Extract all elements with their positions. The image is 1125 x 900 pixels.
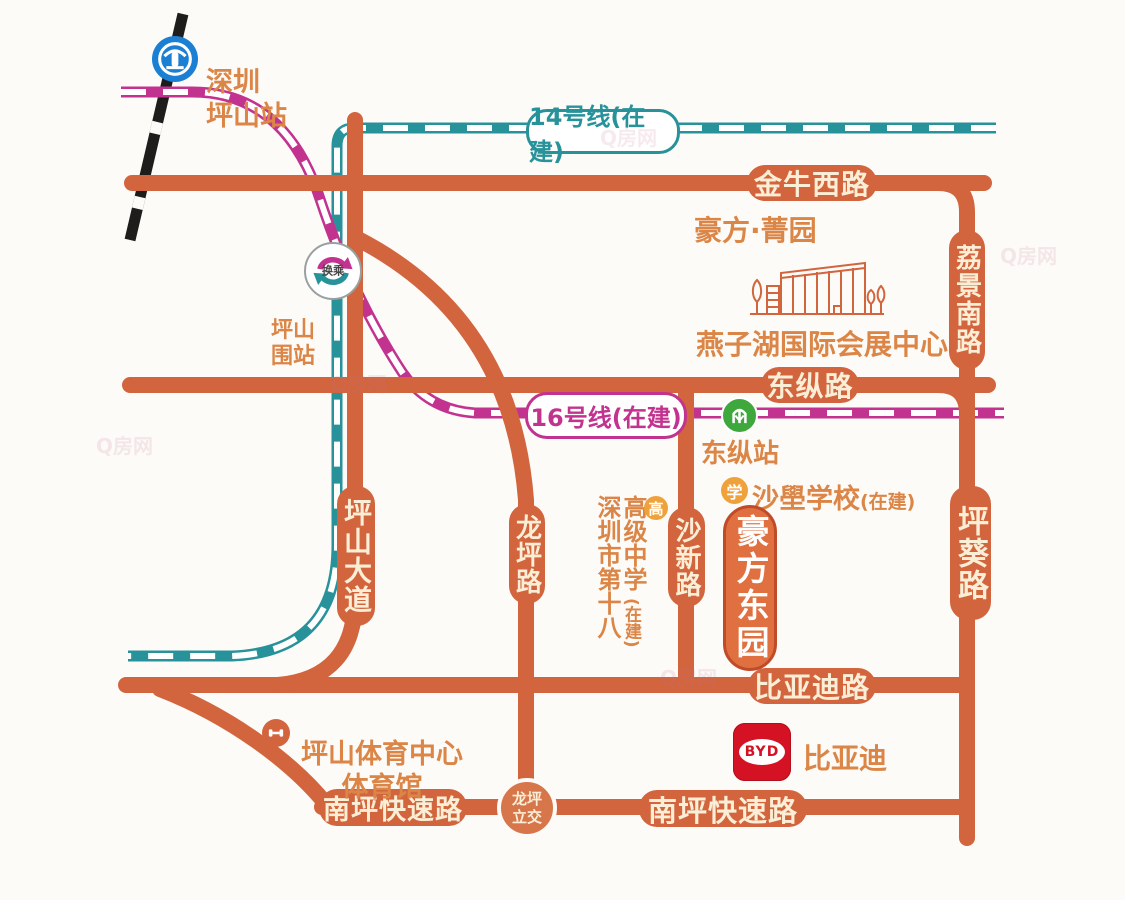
road-label-text: 沙新路 [668,517,705,598]
china-railway-emblem [152,36,198,82]
project-name-text: 豪方东园 [726,514,774,662]
line16-label: 16号线(在建) [530,398,681,433]
transfer-station-icon: 换乘 [304,242,362,300]
road-label-nanping-east: 南坪快速路 [639,790,807,827]
road-label-pingshan-avenue: 坪山大道 [337,486,375,626]
poi-text: 高级中学 [619,495,647,591]
badge-text: 高 [648,498,663,519]
line16-label-pill: 16号线(在建) [525,392,687,439]
byd-logo: BYD [733,723,791,781]
poi-text: 燕子湖国际会展中心 [696,328,948,361]
poi-byd-company: 比亚迪 [803,737,887,777]
china-railway-station-icon [152,36,198,82]
road-label-shaxin: 沙新路 [668,507,705,607]
road-label-text: 荔景南路 [949,244,986,356]
poi-text: 比亚迪 [803,742,887,775]
highschool-badge-icon: 高 [644,496,668,520]
poi-sports-center: 坪山体育中心 体育馆 [296,706,468,805]
road-label-jinniu-west: 金牛西路 [747,165,877,201]
station-label-text: 深圳 坪山站 [206,67,287,132]
shenzhen-metro-station-icon [721,397,758,434]
line14-label: 14号线(在建) [529,97,677,167]
poi-text: 豪方·菁园 [694,214,817,247]
project-haofang-dongyuan: 豪方东园 [723,505,777,671]
gym-dumbbell-icon [262,719,290,747]
map-canvas: 14号线(在建) 16号线(在建) 金牛西路 东纵路 荔景南路 坪山大道 龙坪路… [0,0,1125,900]
poi-shabo-school: 沙壆学校(在建) [752,477,915,516]
poi-yanzihu-convention-center: 燕子湖国际会展中心 [696,323,948,363]
road-label-text: 东纵路 [766,365,853,405]
poi-status-text: (在建) [621,598,641,648]
station-dongzong-label: 东纵站 [701,433,779,470]
station-label-text: 东纵站 [701,439,779,469]
road-label-text: 坪山大道 [336,498,376,614]
badge-text: 学 [726,479,742,503]
road-longping [356,238,526,784]
station-label-text: 坪山 围站 [271,318,315,369]
road-label-text: 坪葵路 [948,505,993,601]
school-badge-icon: 学 [721,477,748,504]
station-shenzhen-pingshan-label: 深圳 坪山站 [206,32,287,133]
road-label-lijing-south: 荔景南路 [949,230,985,370]
transfer-badge-text: 换乘 [322,264,345,278]
convention-center-icon [746,256,888,320]
road-label-text: 龙坪路 [509,514,546,595]
poi-status-text: (在建) [860,491,915,513]
road-label-dongzong: 东纵路 [761,367,859,403]
poi-haofang-jingyuan: 豪方·菁园 [694,209,817,249]
station-pingshanwei-label: 坪山 围站 [266,292,320,370]
poi-text: 坪山体育中心 体育馆 [301,739,463,803]
shenzhen-metro-logo [726,402,753,429]
interchange-label: 龙坪 立交 [512,790,542,826]
road-label-longping: 龙坪路 [509,504,545,604]
line14-label-pill: 14号线(在建) [526,109,680,154]
byd-logo-ellipse: BYD [739,739,785,765]
transfer-arrows-icon: 换乘 [306,244,360,298]
longping-interchange-circle: 龙坪 立交 [497,778,557,838]
road-label-text: 金牛西路 [754,163,870,203]
byd-logo-text: BYD [745,744,780,760]
road-label-pingkui: 坪葵路 [950,486,991,620]
road-label-text: 比亚迪路 [754,666,870,706]
dumbbell-glyph [266,723,286,743]
poi-text: 沙壆学校 [752,484,860,515]
road-label-text: 南坪快速路 [648,788,798,830]
poi-school18-status: (在建) [619,598,644,654]
road-label-byd-road: 比亚迪路 [748,668,876,704]
